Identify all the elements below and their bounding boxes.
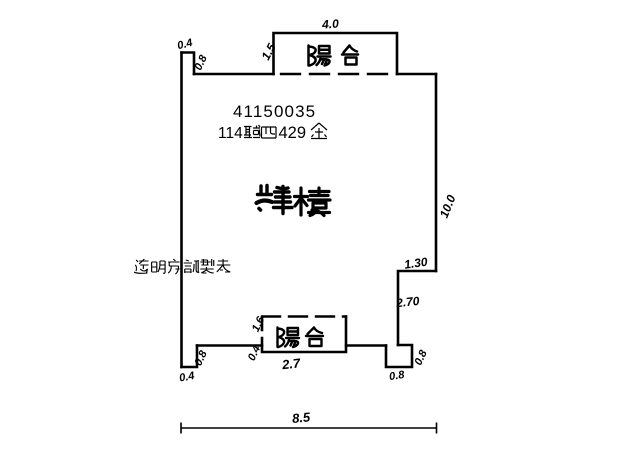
svg-text:10.0: 10.0: [437, 193, 459, 220]
svg-text:41150035: 41150035: [233, 102, 316, 121]
svg-text:429: 429: [279, 124, 307, 142]
svg-text:0.8: 0.8: [413, 348, 431, 368]
svg-text:1.5: 1.5: [259, 41, 279, 63]
svg-text:4.0: 4.0: [321, 17, 340, 32]
svg-text:2.70: 2.70: [394, 294, 420, 311]
svg-text:8.5: 8.5: [291, 409, 311, 426]
svg-text:0.8: 0.8: [193, 348, 211, 368]
svg-text:2.7: 2.7: [280, 355, 301, 372]
svg-text:1.30: 1.30: [403, 255, 428, 272]
svg-text:0.4: 0.4: [176, 37, 194, 52]
svg-text:0.8: 0.8: [388, 369, 406, 383]
svg-text:114: 114: [218, 125, 243, 142]
svg-text:0.4: 0.4: [178, 370, 195, 384]
